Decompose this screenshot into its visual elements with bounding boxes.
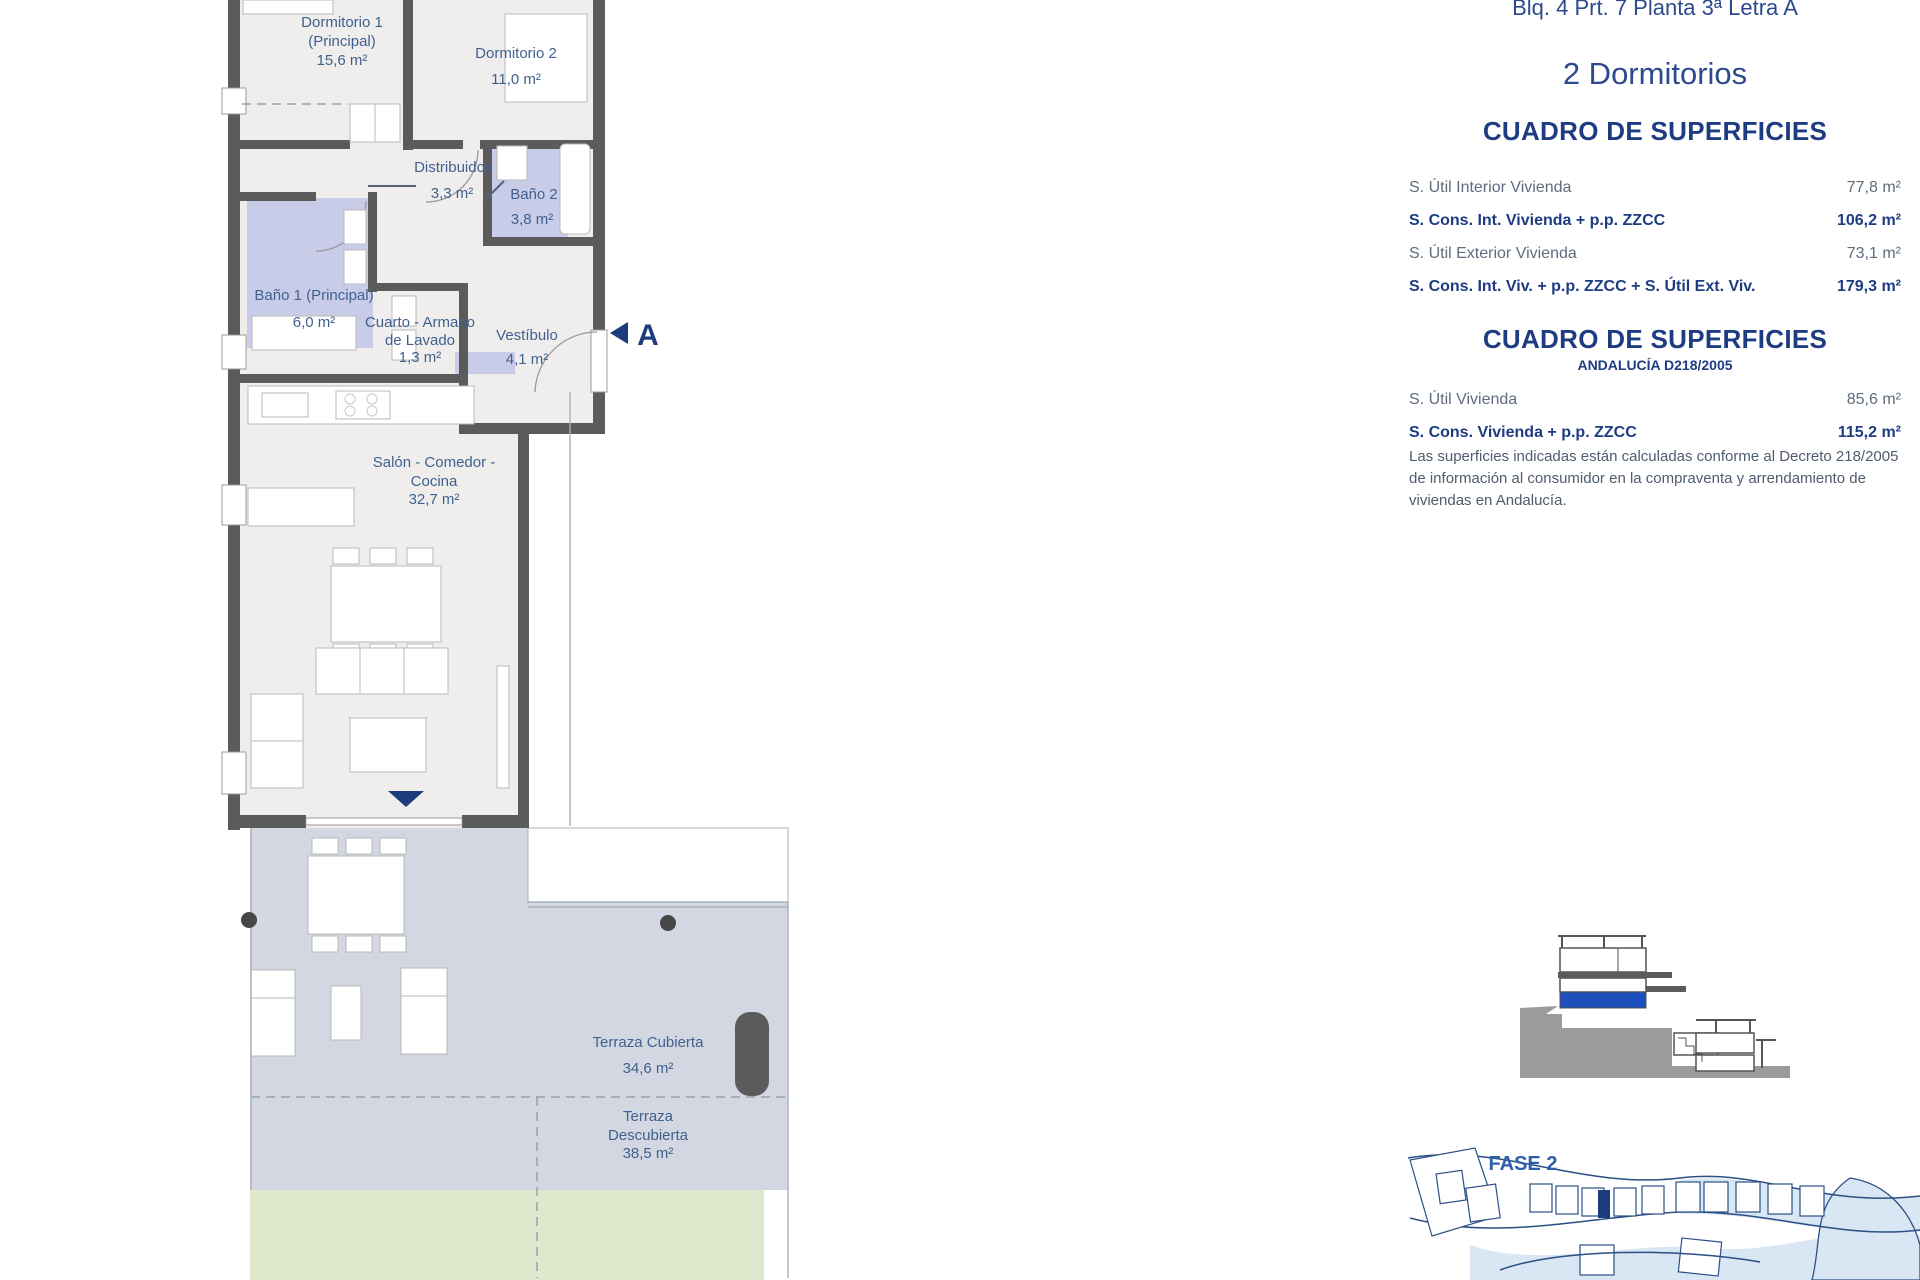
phase-label: FASE 2 — [1489, 1153, 1558, 1175]
row-label: S. Útil Interior Vivienda — [1409, 179, 1571, 197]
legal-note: Las superficies indicadas están calculad… — [1405, 446, 1913, 512]
label-dormitorio2: Dormitorio 2 — [475, 45, 557, 62]
section-arrow-icon — [610, 322, 628, 344]
row-value: 115,2 m² — [1838, 424, 1901, 442]
terrace-pillar — [735, 1012, 769, 1096]
row-label: S. Cons. Int. Viv. + p.p. ZZCC + S. Útil… — [1409, 278, 1755, 296]
area-dormitorio2: 11,0 m² — [491, 71, 541, 88]
plan-page: A Dormitorio 1 (Principal) 15,6 m² Dormi… — [0, 0, 1920, 1280]
garden-floor — [250, 1190, 764, 1280]
row-label: S. Cons. Int. Vivienda + p.p. ZZCC — [1409, 212, 1665, 230]
area-terraza-cubierta: 34,6 m² — [623, 1060, 674, 1077]
terrace-notch — [528, 828, 788, 902]
surfaces-table2: S. Útil Vivienda 85,6 m² S. Cons. Vivien… — [1405, 384, 1905, 450]
area-bano1: 6,0 m² — [293, 314, 336, 331]
label-vestibulo: Vestíbulo — [496, 327, 558, 344]
highlighted-floor — [1560, 992, 1646, 1008]
row-value: 85,6 m² — [1847, 391, 1901, 409]
table-row: S. Cons. Int. Vivienda + p.p. ZZCC 106,2… — [1405, 205, 1905, 238]
label-cuarto-lavado: Cuarto - Armario — [365, 314, 475, 331]
site-plan: FASE 2 — [1380, 1120, 1920, 1280]
row-value: 77,8 m² — [1847, 179, 1901, 197]
row-value: 179,3 m² — [1837, 278, 1901, 296]
surfaces-table2-subtitle: ANDALUCÍA D218/2005 — [1405, 357, 1905, 373]
surfaces-table-title: CUADRO DE SUPERFICIES — [1405, 116, 1905, 147]
label-terraza-cubierta: Terraza Cubierta — [593, 1034, 705, 1051]
table-row: S. Útil Exterior Vivienda 73,1 m² — [1405, 238, 1905, 271]
bedrooms-title: 2 Dormitorios — [1405, 56, 1905, 92]
table-row: S. Útil Vivienda 85,6 m² — [1405, 384, 1905, 417]
building-section-diagram — [1500, 928, 1820, 1088]
surfaces-table2-title: CUADRO DE SUPERFICIES — [1405, 324, 1905, 355]
area-dormitorio1: 15,6 m² — [317, 52, 368, 69]
label-cuarto-lavado-2: de Lavado — [385, 332, 455, 349]
area-salon: 32,7 m² — [409, 491, 460, 508]
area-terraza-descubierta: 38,5 m² — [623, 1145, 674, 1162]
row-value: 106,2 m² — [1837, 212, 1901, 230]
area-cuarto-lavado: 1,3 m² — [399, 349, 442, 366]
area-vestibulo: 4,1 m² — [506, 351, 549, 368]
row-label: S. Útil Exterior Vivienda — [1409, 245, 1577, 263]
label-dormitorio1-2: (Principal) — [308, 33, 376, 50]
label-bano1: Baño 1 (Principal) — [254, 287, 373, 304]
terrace-column — [660, 915, 676, 931]
label-terraza-descubierta-2: Descubierta — [608, 1127, 689, 1144]
area-distribuidor: 3,3 m² — [431, 185, 474, 202]
label-salon: Salón - Comedor - — [373, 454, 496, 471]
floorplan-drawing: A Dormitorio 1 (Principal) 15,6 m² Dormi… — [0, 0, 900, 1280]
row-label: S. Útil Vivienda — [1409, 391, 1517, 409]
terrace-column — [241, 912, 257, 928]
surfaces-table: S. Útil Interior Vivienda 77,8 m² S. Con… — [1405, 172, 1905, 304]
table-row: S. Útil Interior Vivienda 77,8 m² — [1405, 172, 1905, 205]
label-terraza-descubierta: Terraza — [623, 1108, 674, 1125]
row-value: 73,1 m² — [1847, 245, 1901, 263]
area-bano2: 3,8 m² — [511, 211, 554, 228]
label-distribuidor: Distribuidor — [414, 159, 490, 176]
section-marker-label: A — [637, 319, 659, 352]
label-salon-2: Cocina — [411, 473, 458, 490]
unit-reference: Blq. 4 Prt. 7 Planta 3ª Letra A — [1405, 0, 1905, 21]
unit-location-highlight — [1598, 1190, 1610, 1218]
label-dormitorio1: Dormitorio 1 — [301, 14, 383, 31]
row-label: S. Cons. Vivienda + p.p. ZZCC — [1409, 424, 1637, 442]
table-row: S. Cons. Int. Viv. + p.p. ZZCC + S. Útil… — [1405, 271, 1905, 304]
label-bano2: Baño 2 — [510, 186, 558, 203]
